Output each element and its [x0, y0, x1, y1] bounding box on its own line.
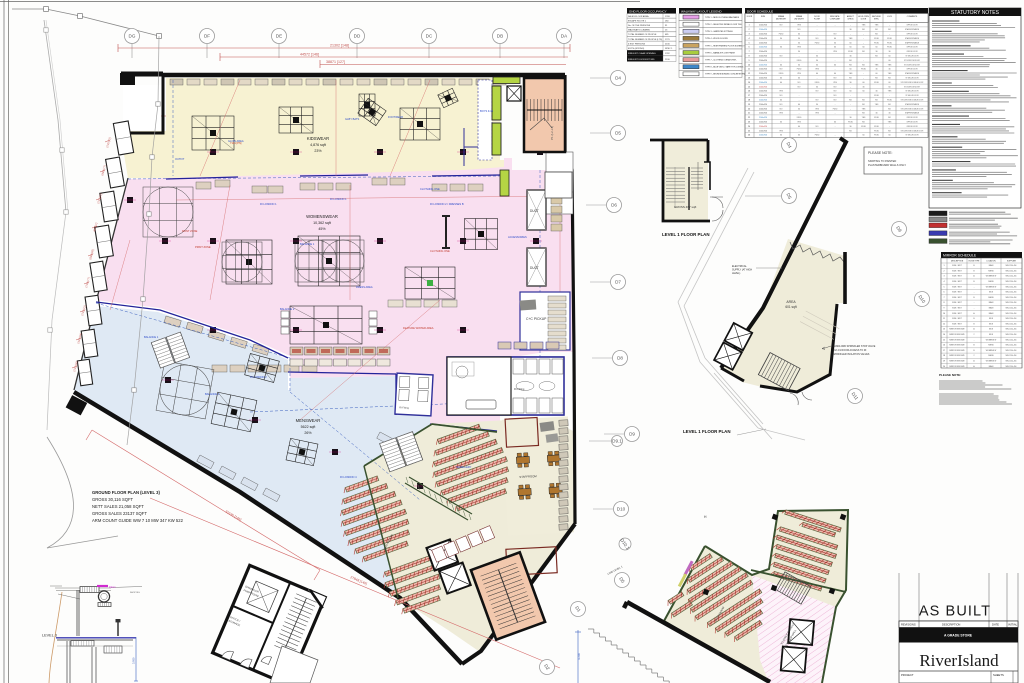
svg-text:2100x926: 2100x926	[759, 25, 767, 27]
svg-text:30: 30	[889, 69, 891, 71]
svg-text:FD30: FD30	[887, 42, 891, 44]
svg-text:OUTFIT: OUTFIT	[175, 157, 185, 161]
svg-text:7: 7	[943, 297, 944, 299]
svg-text:FD30: FD30	[815, 82, 819, 84]
svg-text:2100x926: 2100x926	[759, 95, 767, 97]
svg-text:LANDLORD SPRINKLER STOP VALVE: LANDLORD SPRINKLER STOP VALVE	[833, 345, 876, 348]
svg-text:LEVEL 1 FLOOR PLAN: LEVEL 1 FLOOR PLAN	[662, 232, 710, 237]
svg-text:FEATURE WINTER AREA: FEATURE WINTER AREA	[403, 326, 434, 330]
svg-text:2: 2	[943, 270, 944, 272]
svg-text:2100x926: 2100x926	[759, 122, 767, 124]
svg-text:OFFICE DOOR: OFFICE DOOR	[906, 47, 918, 49]
svg-text:DUCT: DUCT	[530, 209, 539, 213]
svg-text:SKIRTING TO PAINTED: SKIRTING TO PAINTED	[868, 159, 896, 163]
svg-text:6: 6	[943, 292, 944, 294]
svg-text:MIR-123-4-456: MIR-123-4-456	[1006, 329, 1017, 331]
svg-text:17: 17	[943, 350, 945, 352]
svg-text:60: 60	[889, 135, 891, 137]
svg-text:60: 60	[889, 60, 891, 62]
svg-text:10: 10	[943, 313, 945, 315]
svg-text:30: 30	[816, 64, 818, 66]
svg-text:FD30: FD30	[874, 126, 878, 128]
svg-text:60: 60	[863, 135, 865, 137]
svg-text:WOMENS W: WOMENS W	[986, 276, 997, 278]
svg-text:PRINT ZONE: PRINT ZONE	[195, 245, 211, 249]
svg-text:MIR-123-4-456: MIR-123-4-456	[1006, 313, 1017, 315]
svg-text:DATE: DATE	[992, 623, 999, 627]
svg-text:4.200: 4.200	[577, 653, 581, 660]
svg-text:(W) WIDTH: (W) WIDTH	[794, 19, 804, 21]
svg-text:DESCRIPTION: DESCRIPTION	[942, 623, 960, 627]
svg-text:FOOTWEAR: FOOTWEAR	[388, 115, 403, 119]
svg-text:2100x926: 2100x926	[759, 130, 767, 132]
svg-text:STOCKROOM DOUBLE DOOR: STOCKROOM DOUBLE DOOR	[901, 82, 924, 84]
svg-text:DUCT: DUCT	[530, 266, 539, 270]
svg-text:30: 30	[798, 51, 800, 53]
svg-text:CLOTHING ONE: CLOTHING ONE	[420, 187, 440, 191]
svg-text:19: 19	[943, 361, 945, 363]
svg-text:KIDSWEAR: KIDSWEAR	[307, 136, 329, 141]
svg-text:P1 (L2-L3): P1 (L2-L3)	[550, 126, 554, 140]
svg-text:30: 30	[850, 126, 852, 128]
svg-text:GROUND FLOOR PLAN (LEVEL 3): GROUND FLOOR PLAN (LEVEL 3)	[92, 490, 160, 495]
svg-text:45%: 45%	[318, 227, 326, 231]
svg-text:BALANCE 1: BALANCE 1	[300, 242, 315, 246]
svg-text:MENS: MENS	[988, 345, 994, 347]
svg-text:MIR-123-4-456: MIR-123-4-456	[1006, 318, 1017, 320]
svg-text:5: 5	[943, 286, 944, 288]
svg-text:2100x926: 2100x926	[759, 126, 767, 128]
svg-text:6 EXIT PERSONS: 6 EXIT PERSONS	[628, 43, 646, 45]
svg-text:60: 60	[780, 82, 782, 84]
svg-text:TYPE 1 - NEW CLOTHING WALKWAYS: TYPE 1 - NEW CLOTHING WALKWAYS	[705, 16, 740, 19]
svg-text:OFFICE DOOR: OFFICE DOOR	[906, 25, 918, 27]
svg-text:CHECK: CHECK	[847, 19, 854, 21]
svg-text:MIRROR BRONZE: MIRROR BRONZE	[949, 334, 965, 336]
svg-text:D8: D8	[617, 356, 623, 361]
svg-text:RI LONDON 1: RI LONDON 1	[260, 202, 277, 206]
svg-text:SIDE / EXIT: SIDE / EXIT	[952, 302, 963, 304]
svg-text:DOOR SCHEDULE: DOOR SCHEDULE	[747, 9, 773, 13]
svg-text:30: 30	[798, 42, 800, 44]
svg-text:60: 60	[780, 100, 782, 102]
svg-text:D7: D7	[615, 280, 621, 285]
svg-text:60: 60	[889, 56, 891, 58]
svg-text:MENS: MENS	[988, 355, 994, 357]
svg-text:SIDE / EXIT: SIDE / EXIT	[952, 292, 963, 294]
svg-text:2100x926: 2100x926	[759, 108, 767, 110]
svg-text:LOCATION: LOCATION	[986, 259, 996, 262]
svg-text:ARM COUNT GUIDE WW 7 10 MW 347: ARM COUNT GUIDE WW 7 10 MW 347 KW 522	[92, 518, 184, 523]
svg-text:60: 60	[834, 47, 836, 49]
svg-text:2100x926: 2100x926	[759, 113, 767, 115]
svg-text:60: 60	[850, 47, 852, 49]
svg-text:60: 60	[863, 91, 865, 93]
svg-text:RI LONDON 1: RI LONDON 1	[330, 197, 347, 201]
svg-text:13: 13	[943, 329, 945, 331]
svg-text:SIDE / EXIT: SIDE / EXIT	[952, 270, 963, 272]
svg-text:TOTAL NUMBER OF PEOPLE: TOTAL NUMBER OF PEOPLE	[628, 33, 657, 36]
svg-text:OFFICE DOOR: OFFICE DOOR	[906, 117, 918, 119]
svg-text:60: 60	[876, 73, 878, 75]
svg-text:FD30: FD30	[779, 34, 783, 36]
svg-text:MIR-123-4-456: MIR-123-4-456	[1006, 334, 1017, 336]
svg-text:TOTAL NUMBER OF PEOPLE (LTD): TOTAL NUMBER OF PEOPLE (LTD)	[628, 38, 662, 41]
svg-text:SUPPLIER: SUPPLIER	[1007, 260, 1017, 262]
svg-text:DF: DF	[204, 34, 210, 39]
svg-text:FD30: FD30	[874, 95, 878, 97]
svg-text:WOMENS W: WOMENS W	[986, 339, 997, 341]
svg-text:RI Fitting: RI Fitting	[399, 406, 409, 410]
svg-text:DOOR: DOOR	[861, 19, 867, 21]
svg-text:ANTI-FGR: ANTI-FGR	[872, 15, 881, 18]
svg-text:ST GELUS DOOR: ST GELUS DOOR	[905, 56, 919, 58]
svg-text:MAIN: MAIN	[989, 365, 994, 368]
svg-text:PAINT ZONE: PAINT ZONE	[182, 229, 198, 233]
svg-text:MIR-123-4-456: MIR-123-4-456	[1006, 323, 1017, 325]
svg-text:RI LONDON 4: RI LONDON 4	[340, 475, 357, 479]
svg-text:MENSWEAR: MENSWEAR	[296, 418, 321, 423]
svg-text:MIRROR BRONZE: MIRROR BRONZE	[949, 339, 965, 341]
svg-text:30: 30	[889, 113, 891, 115]
svg-text:WALKWAY LAYOUT LEGEND: WALKWAY LAYOUT LEGEND	[681, 9, 722, 13]
svg-text:FD30: FD30	[874, 42, 878, 44]
svg-text:FD30: FD30	[833, 108, 837, 110]
svg-text:ST GELUS DOOR: ST GELUS DOOR	[905, 78, 919, 80]
svg-text:MIR-123-4-456: MIR-123-4-456	[1006, 355, 1017, 357]
svg-text:3.950: 3.950	[132, 657, 136, 664]
svg-text:2100x926: 2100x926	[759, 64, 767, 66]
svg-text:MIRROR BRONZE: MIRROR BRONZE	[949, 345, 965, 347]
svg-text:NETT SALES 21,058 SQFT: NETT SALES 21,058 SQFT	[92, 504, 144, 509]
svg-text:2100x926: 2100x926	[759, 38, 767, 40]
svg-text:60: 60	[850, 42, 852, 44]
svg-text:MAIN: MAIN	[989, 307, 994, 310]
svg-text:GLOW AREA: GLOW AREA	[228, 139, 244, 143]
svg-text:MAIN: MAIN	[989, 312, 994, 315]
svg-text:3: 3	[943, 276, 944, 278]
svg-text:DG: DG	[129, 34, 136, 39]
svg-text:DOOR: DOOR	[747, 16, 753, 18]
svg-text:20: 20	[943, 366, 945, 368]
svg-text:FD30: FD30	[848, 51, 852, 53]
svg-text:SIDE / EXIT: SIDE / EXIT	[952, 297, 963, 299]
svg-text:A GRADE STORE: A GRADE STORE	[944, 634, 973, 638]
svg-text:30: 30	[816, 86, 818, 88]
svg-text:INITIAL: INITIAL	[1008, 623, 1018, 627]
svg-text:10,362 sqft: 10,362 sqft	[313, 221, 331, 225]
svg-text:FD30: FD30	[874, 38, 878, 40]
svg-text:SHOP SIG: SHOP SIG	[130, 592, 140, 594]
svg-text:2100x926: 2100x926	[759, 82, 767, 84]
svg-text:MAIN: MAIN	[989, 301, 994, 304]
svg-text:8: 8	[943, 302, 944, 304]
svg-text:DC: DC	[426, 34, 433, 39]
svg-text:WALKWAYS CLEARED: WALKWAYS CLEARED	[628, 29, 651, 32]
svg-text:44572 [146]: 44572 [146]	[300, 53, 319, 57]
svg-text:2: 2	[974, 355, 975, 357]
svg-text:18: 18	[943, 355, 945, 357]
svg-text:TYPE 8 - BLUE VINYL / SAFETY F: TYPE 8 - BLUE VINYL / SAFETY FLOORING	[705, 66, 744, 69]
svg-text:30: 30	[798, 108, 800, 110]
svg-text:MIR-123-4-456: MIR-123-4-456	[1006, 350, 1017, 352]
svg-text:MIR-123-4-456: MIR-123-4-456	[1006, 366, 1017, 368]
svg-text:GROSS 467 sqft: GROSS 467 sqft	[674, 205, 697, 209]
svg-text:SIDE / EXIT: SIDE / EXIT	[952, 281, 963, 283]
svg-text:DESCRIPTION: DESCRIPTION	[951, 260, 964, 262]
svg-text:DD: DD	[354, 34, 361, 39]
svg-text:60: 60	[834, 64, 836, 66]
svg-text:SV1 19 ROOM ACCESS TO RI: SV1 19 ROOM ACCESS TO RI	[833, 349, 867, 352]
svg-text:SIDE / EXIT: SIDE / EXIT	[952, 323, 963, 325]
svg-text:14: 14	[943, 334, 945, 336]
svg-text:2100x926: 2100x926	[759, 42, 767, 44]
svg-text:60: 60	[780, 64, 782, 66]
svg-text:MIR-123-4-456: MIR-123-4-456	[1006, 286, 1017, 288]
svg-text:60: 60	[850, 91, 852, 93]
svg-text:FD30: FD30	[797, 117, 801, 119]
svg-text:BALANCE 3: BALANCE 3	[205, 392, 220, 396]
svg-text:D9.1: D9.1	[612, 439, 622, 444]
svg-text:SIDE / EXIT: SIDE / EXIT	[952, 313, 963, 315]
svg-text:SPEC: SPEC	[874, 19, 880, 21]
svg-text:STOCKROOM DOOR: STOCKROOM DOOR	[904, 64, 920, 66]
svg-text:TYPE 7 - CLOTHING / DENIM VINY: TYPE 7 - CLOTHING / DENIM VINYL	[705, 60, 737, 62]
svg-text:DRESS AREA: DRESS AREA	[356, 285, 373, 289]
svg-text:MIR-123-4-456: MIR-123-4-456	[1006, 281, 1017, 283]
svg-text:ACCESSORIES: ACCESSORIES	[508, 235, 527, 239]
svg-text:STOCKROOM DOOR: STOCKROOM DOOR	[904, 86, 920, 88]
svg-text:30: 30	[876, 91, 878, 93]
svg-text:D10: D10	[617, 507, 626, 512]
svg-text:MIR-123-4-456: MIR-123-4-456	[1006, 345, 1017, 347]
svg-text:2100x926: 2100x926	[759, 117, 767, 119]
svg-text:30: 30	[850, 29, 852, 31]
svg-text:DA: DA	[561, 34, 568, 39]
svg-text:2100x926: 2100x926	[759, 100, 767, 102]
svg-text:DE: DE	[276, 34, 282, 39]
svg-text:30: 30	[876, 69, 878, 71]
svg-text:MIRROR BRONZE: MIRROR BRONZE	[949, 350, 965, 352]
svg-text:FD30: FD30	[874, 130, 878, 132]
svg-text:MIR-123-4-456: MIR-123-4-456	[1006, 339, 1017, 341]
svg-text:23%: 23%	[314, 149, 322, 153]
svg-text:STATUTORY NOTES: STATUTORY NOTES	[951, 10, 1000, 16]
svg-text:SIDE / EXIT: SIDE / EXIT	[952, 265, 963, 267]
svg-text:D9: D9	[629, 432, 635, 437]
svg-text:FD30: FD30	[887, 100, 891, 102]
svg-text:16: 16	[943, 345, 945, 347]
svg-text:2: 2	[974, 334, 975, 336]
svg-text:MENS: MENS	[988, 281, 994, 283]
svg-text:2100x926: 2100x926	[759, 47, 767, 49]
svg-text:TYPE 9 - BROKEN BONDED CONCRET: TYPE 9 - BROKEN BONDED CONCRETE FINISH	[705, 74, 748, 76]
svg-text:D5: D5	[615, 131, 621, 136]
svg-text:MIR-123-4-456: MIR-123-4-456	[1006, 276, 1017, 278]
svg-text:15: 15	[943, 339, 945, 341]
svg-text:MIR-123-4-456: MIR-123-4-456	[1006, 361, 1017, 363]
svg-text:SIDE / EXIT: SIDE / EXIT	[952, 286, 963, 288]
svg-text:D6: D6	[611, 203, 617, 208]
svg-text:MIR-123-4-456: MIR-123-4-456	[1006, 308, 1017, 310]
svg-text:ST GELUS DOOR: ST GELUS DOOR	[905, 135, 919, 137]
svg-text:60: 60	[863, 82, 865, 84]
svg-text:JEWELLERY: JEWELLERY	[456, 465, 472, 469]
svg-text:COMPLIANT: COMPLIANT	[830, 18, 841, 21]
svg-text:12: 12	[943, 323, 945, 325]
svg-text:601 sqft: 601 sqft	[785, 305, 796, 309]
svg-text:60: 60	[798, 104, 800, 106]
svg-text:SIDE / EXIT: SIDE / EXIT	[952, 276, 963, 278]
svg-text:LEVEL 3: LEVEL 3	[42, 634, 57, 638]
svg-text:30: 30	[780, 38, 782, 40]
svg-text:STOCKROOM DOOR: STOCKROOM DOOR	[904, 60, 920, 62]
svg-text:60: 60	[834, 122, 836, 124]
svg-text:C+C PICKUP: C+C PICKUP	[526, 317, 547, 321]
svg-text:DB: DB	[497, 34, 503, 39]
svg-text:PLEASE NOTE:: PLEASE NOTE:	[939, 373, 961, 377]
svg-text:(W) HEIGHT: (W) HEIGHT	[776, 19, 787, 21]
svg-text:60: 60	[780, 122, 782, 124]
svg-text:D4: D4	[615, 76, 621, 81]
svg-text:STOCKROOM DOUBLE DOOR: STOCKROOM DOUBLE DOOR	[901, 130, 924, 132]
svg-text:MIR-123-4-456: MIR-123-4-456	[1006, 302, 1017, 304]
svg-text:SPEC 1: SPEC 1	[665, 48, 673, 50]
svg-text:MAIN: MAIN	[989, 264, 994, 267]
svg-text:30: 30	[798, 38, 800, 40]
svg-text:BALANCE 1: BALANCE 1	[144, 335, 159, 339]
svg-text:RI LONDON 2 / DRESSES B: RI LONDON 2 / DRESSES B	[430, 202, 464, 206]
svg-text:FRAME: FRAME	[796, 15, 803, 18]
svg-text:60: 60	[798, 78, 800, 80]
svg-text:MIRROR BRONZE: MIRROR BRONZE	[949, 366, 965, 368]
svg-text:FD30: FD30	[874, 135, 878, 137]
svg-text:TYPE 4 - WOOD FLOORS: TYPE 4 - WOOD FLOORS	[705, 38, 728, 40]
svg-text:GND FLOOR OCCUPANCY: GND FLOOR OCCUPANCY	[629, 9, 667, 13]
svg-text:RiverIsland: RiverIsland	[919, 651, 999, 670]
svg-text:30: 30	[863, 86, 865, 88]
svg-text:FIRE EXIT DOOR EXIT WID: FIRE EXIT DOOR EXIT WID	[628, 59, 655, 61]
svg-text:MIRROR BRONZE: MIRROR BRONZE	[949, 355, 965, 357]
svg-text:BALANCE 2: BALANCE 2	[280, 307, 295, 311]
svg-text:FD30: FD30	[861, 126, 865, 128]
svg-text:26%: 26%	[304, 431, 312, 435]
svg-text:BOYS 9-16: BOYS 9-16	[480, 109, 494, 113]
svg-text:MIRROR BRONZE: MIRROR BRONZE	[949, 361, 965, 363]
svg-text:OFFICE DOOR: OFFICE DOOR	[906, 34, 918, 36]
svg-text:30: 30	[780, 47, 782, 49]
svg-text:FD30: FD30	[848, 122, 852, 124]
svg-text:FD30: FD30	[861, 69, 865, 71]
svg-text:RI Fitting: RI Fitting	[514, 387, 525, 391]
svg-text:2100x926: 2100x926	[759, 73, 767, 75]
svg-text:60: 60	[798, 126, 800, 128]
svg-text:EXITS (WIDTHS): EXITS (WIDTHS)	[628, 48, 644, 50]
svg-text:2100x926: 2100x926	[759, 69, 767, 71]
svg-text:30: 30	[889, 51, 891, 53]
svg-text:WOMENS W: WOMENS W	[986, 361, 997, 363]
svg-text:MIR-123-4-456: MIR-123-4-456	[1006, 297, 1017, 299]
svg-text:GROSS SALES 23137 SQFT: GROSS SALES 23137 SQFT	[92, 511, 147, 516]
svg-text:30: 30	[850, 82, 852, 84]
svg-text:60: 60	[816, 73, 818, 75]
svg-text:LEVEL): LEVEL)	[732, 272, 740, 275]
svg-text:RI LONDON 2: RI LONDON 2	[250, 375, 267, 379]
svg-text:WOMENSWEAR: WOMENSWEAR	[306, 214, 338, 219]
svg-text:21302 [148]: 21302 [148]	[330, 44, 349, 48]
svg-text:4: 4	[943, 281, 944, 283]
svg-text:60: 60	[863, 47, 865, 49]
svg-text:SIDE / EXIT: SIDE / EXIT	[952, 318, 963, 320]
svg-text:MENS: MENS	[988, 270, 994, 272]
svg-text:GROSS 30,116 SQFT: GROSS 30,116 SQFT	[92, 497, 134, 502]
svg-text:OFFICE DOOR: OFFICE DOOR	[906, 51, 918, 53]
svg-text:PROJECT: PROJECT	[901, 673, 914, 677]
svg-text:11: 11	[943, 318, 945, 320]
svg-text:PLASTERBOARD WALLS ONLY: PLASTERBOARD WALLS ONLY	[868, 163, 906, 167]
svg-text:CLOTHING ONE: CLOTHING ONE	[430, 249, 450, 253]
svg-text:COMMENTS: COMMENTS	[907, 16, 918, 18]
svg-text:TYPE 6 - MARBLE FLOOR FINISH: TYPE 6 - MARBLE FLOOR FINISH	[705, 51, 735, 54]
svg-text:2100x926: 2100x926	[759, 60, 767, 62]
svg-text:WOMENS W: WOMENS W	[986, 286, 997, 288]
svg-text:SHEETS: SHEETS	[993, 673, 1004, 677]
svg-text:2100x926: 2100x926	[759, 56, 767, 58]
svg-text:FD30: FD30	[779, 73, 783, 75]
svg-text:REVISIONS: REVISIONS	[901, 623, 916, 627]
svg-text:STOCKROOM DOUBLE DOOR: STOCKROOM DOUBLE DOOR	[901, 100, 924, 102]
svg-text:MIR-123-4-456: MIR-123-4-456	[1006, 292, 1017, 294]
svg-text:MIRROR SCHEDULE: MIRROR SCHEDULE	[943, 254, 977, 258]
svg-text:30: 30	[876, 113, 878, 115]
svg-text:FD30: FD30	[815, 135, 819, 137]
svg-text:2100x926: 2100x926	[759, 29, 767, 31]
svg-text:60: 60	[798, 34, 800, 36]
svg-text:FD30: FD30	[797, 60, 801, 62]
svg-text:FD30: FD30	[797, 69, 801, 71]
svg-text:30: 30	[816, 60, 818, 62]
svg-text:FD30: FD30	[815, 42, 819, 44]
svg-text:MIR-123-4-456: MIR-123-4-456	[1006, 270, 1017, 272]
svg-text:OFFICE DOOR: OFFICE DOOR	[906, 69, 918, 71]
svg-text:SPRINKLER ISOLATION VALVES: SPRINKLER ISOLATION VALVES	[833, 353, 870, 356]
svg-text:ROOM TYPE: ROOM TYPE	[969, 260, 981, 262]
svg-text:9: 9	[943, 308, 944, 310]
svg-text:PLEASE NOTE:: PLEASE NOTE:	[868, 151, 893, 155]
svg-text:30: 30	[816, 104, 818, 106]
svg-text:2100x926: 2100x926	[759, 135, 767, 137]
svg-text:2100x926: 2100x926	[759, 91, 767, 93]
svg-text:LEVEL 1 FLOOR PLAN: LEVEL 1 FLOOR PLAN	[683, 429, 731, 434]
svg-text:No. OF THE PERSONS: No. OF THE PERSONS	[628, 25, 651, 27]
svg-text:WOMENS W: WOMENS W	[986, 350, 997, 352]
svg-text:MENS: MENS	[988, 297, 994, 299]
svg-text:2100x926: 2100x926	[759, 86, 767, 88]
svg-text:1: 1	[943, 265, 944, 267]
svg-text:2100x926: 2100x926	[759, 104, 767, 106]
svg-text:GLBY BATS: GLBY BATS	[345, 117, 359, 121]
svg-text:60: 60	[889, 82, 891, 84]
svg-text:4,876 sqft: 4,876 sqft	[310, 143, 326, 147]
svg-text:OFFICE DOOR: OFFICE DOOR	[906, 126, 918, 128]
svg-text:AS BUILT: AS BUILT	[919, 604, 991, 620]
svg-text:30: 30	[798, 64, 800, 66]
svg-text:FIRE RATE /: FIRE RATE /	[830, 15, 841, 18]
svg-text:FRAME: FRAME	[778, 15, 785, 18]
svg-text:60: 60	[834, 38, 836, 40]
svg-text:40mm: 40mm	[109, 586, 116, 589]
svg-text:30: 30	[876, 51, 878, 53]
